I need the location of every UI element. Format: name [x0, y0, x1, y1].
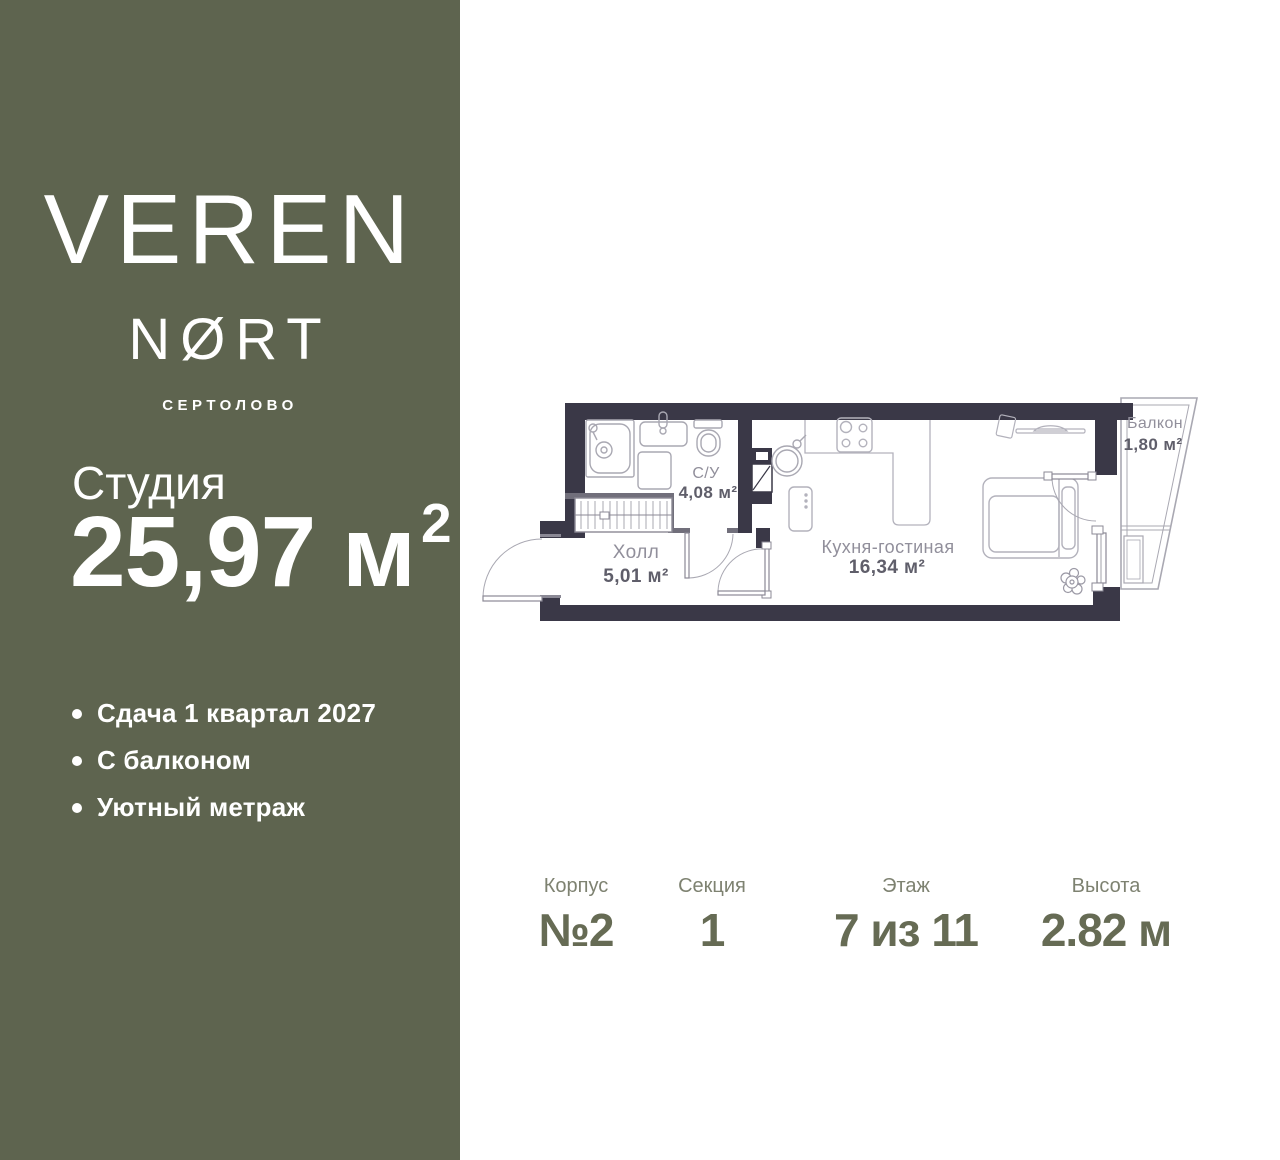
entrance-jambs [540, 534, 561, 598]
plant [1061, 569, 1085, 595]
detail-label: Высота [1041, 876, 1171, 896]
room-label-hall: Холл [613, 542, 659, 563]
room-label-bathroom: С/У [692, 465, 720, 482]
bullet-dot-icon [72, 756, 82, 766]
room-label-kitchen: Кухня-гостиная [822, 537, 955, 557]
kitchen-sink [772, 435, 806, 476]
room-area-balcony: 1,80 м² [1124, 435, 1183, 454]
unit-area-value: 25,97 [70, 496, 315, 608]
detail-label: Корпус [539, 876, 614, 896]
kitchen-cabinet [789, 487, 812, 531]
wardrobe [575, 498, 672, 532]
feature-item: С балконом [72, 737, 376, 784]
detail-height: Высота 2.82 м [1041, 876, 1171, 953]
detail-value: 2.82 м [1041, 907, 1171, 953]
brand-name-top: VEREN [0, 180, 460, 278]
vent-shaft [752, 448, 772, 504]
room-area-hall: 5,01 м² [603, 566, 668, 587]
bullet-dot-icon [72, 803, 82, 813]
room-label-balcony: Балкон [1127, 415, 1183, 432]
kitchen-door [718, 542, 771, 598]
feature-text: С балконом [97, 745, 251, 776]
detail-label: Секция [678, 876, 746, 896]
unit-area: 25,97 м2 [70, 502, 452, 602]
bed [983, 478, 1078, 558]
detail-label: Этаж [834, 876, 978, 896]
detail-building: Корпус №2 [539, 876, 614, 953]
room-area-kitchen: 16,34 м² [849, 557, 925, 578]
feature-list: Сдача 1 квартал 2027 С балконом Уютный м… [72, 690, 376, 831]
kitchen-counter [805, 420, 930, 525]
shower [586, 420, 634, 477]
unit-area-unit: м [315, 496, 415, 608]
brand-name-bottom: NØRT [0, 311, 460, 369]
stove [837, 418, 872, 452]
toilet [694, 420, 722, 456]
entrance-door [483, 539, 542, 601]
window [1092, 526, 1106, 591]
detail-value: 1 [678, 907, 746, 953]
detail-floor: Этаж 7 из 11 [834, 876, 978, 953]
bullet-dot-icon [72, 709, 82, 719]
room-area-bathroom: 4,08 м² [679, 483, 738, 502]
feature-text: Уютный метраж [97, 792, 305, 823]
unit-area-exponent: 2 [421, 496, 452, 551]
floor-plan: С/У 4,08 м² Холл 5,01 м² Кухня-гостиная … [460, 380, 1220, 640]
brand-logo: VEREN NØRT СЕРТОЛОВО [0, 180, 460, 413]
washing-machine [638, 452, 671, 489]
detail-value: №2 [539, 907, 614, 953]
sidebar: VEREN NØRT СЕРТОЛОВО Студия 25,97 м2 Сда… [0, 0, 460, 1160]
feature-item: Уютный метраж [72, 784, 376, 831]
detail-value: 7 из 11 [834, 907, 978, 953]
brand-location: СЕРТОЛОВО [0, 398, 460, 413]
bathroom-door [685, 533, 733, 578]
feature-text: Сдача 1 квартал 2027 [97, 698, 376, 729]
detail-section: Секция 1 [678, 876, 746, 953]
feature-item: Сдача 1 квартал 2027 [72, 690, 376, 737]
